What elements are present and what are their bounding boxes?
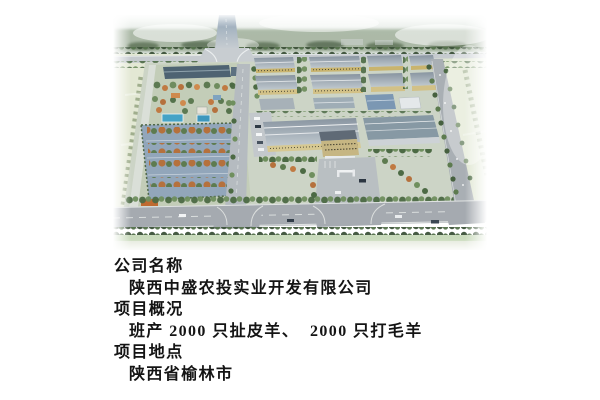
document-page: 公司名称 陕西中盛农投实业开发有限公司 项目概况 班产 2000 只扯皮羊、 2… <box>0 0 600 400</box>
site-aerial-image <box>113 15 487 250</box>
project-overview-value: 班产 2000 只扯皮羊、 2000 只打毛羊 <box>114 321 584 343</box>
project-location-value: 陕西省榆林市 <box>114 364 584 386</box>
company-name-value: 陕西中盛农投实业开发有限公司 <box>114 278 584 300</box>
project-info-text: 公司名称 陕西中盛农投实业开发有限公司 项目概况 班产 2000 只扯皮羊、 2… <box>114 256 584 385</box>
company-name-label: 公司名称 <box>114 256 584 278</box>
project-location-label: 项目地点 <box>114 342 584 364</box>
aerial-rendering-graphic <box>113 15 487 250</box>
project-overview-label: 项目概况 <box>114 299 584 321</box>
